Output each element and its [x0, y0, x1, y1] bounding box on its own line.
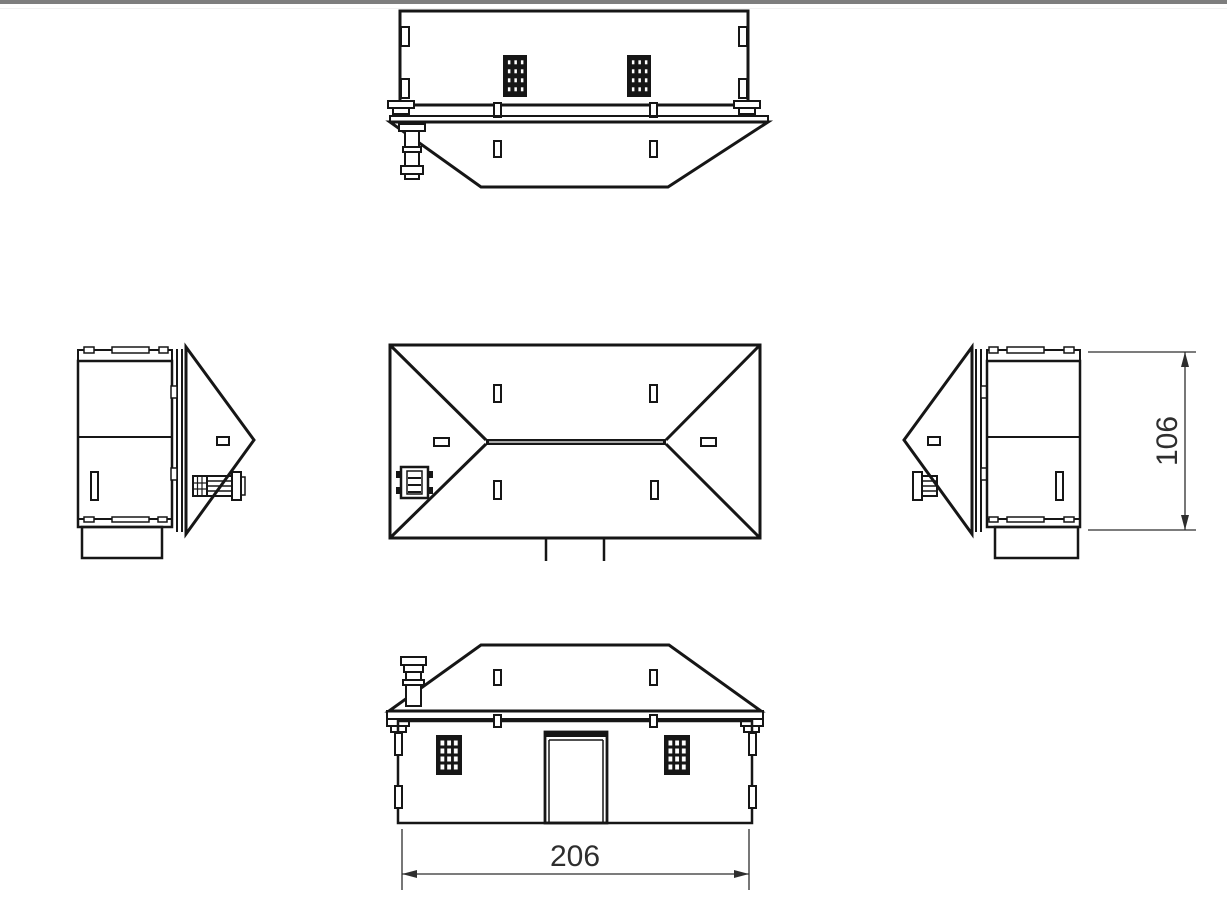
plan-hip-line [666, 346, 759, 440]
width-dimension-label: 206 [550, 840, 600, 873]
right-sill-notch [1007, 517, 1044, 522]
right-gable-slot [928, 437, 940, 445]
rear-eave-tab [494, 103, 501, 117]
left-wall [78, 361, 172, 527]
left-base [82, 527, 162, 558]
rear-corner-bracket [739, 108, 755, 114]
left-band-notch [112, 347, 149, 353]
plan-hip-line [666, 444, 759, 537]
left-side-view [78, 347, 254, 558]
right-sill-notch [1064, 517, 1074, 522]
left-fascia-tab [171, 468, 177, 480]
right-chimney [913, 472, 937, 500]
left-fascia-tab [171, 386, 177, 398]
rear-elevation-view [388, 11, 768, 187]
front-wall-tab [494, 715, 501, 727]
rear-corner-bracket [734, 101, 760, 108]
rear-wall [400, 11, 748, 105]
front-elevation-view: 206 [387, 645, 763, 890]
front-window-left [436, 735, 462, 775]
rear-tab [401, 79, 409, 98]
front-roof [389, 645, 761, 711]
plan-ridge [486, 439, 666, 445]
dimension-arrow-down [1181, 515, 1189, 530]
width-dimension: 206 [402, 829, 749, 890]
faint-guide-line [0, 8, 1227, 9]
left-chimney [193, 472, 245, 500]
right-side-view: 106 [904, 347, 1196, 558]
rear-tab [401, 27, 409, 46]
right-wall [987, 361, 1080, 527]
height-dimension: 106 [1088, 352, 1196, 530]
rear-tab [739, 27, 747, 46]
rear-roof-slot [494, 141, 501, 157]
orthographic-house-drawing: 106 [0, 0, 1227, 904]
rear-corner-bracket [388, 101, 414, 108]
right-band-notch [989, 347, 998, 353]
left-sill-notch [158, 517, 167, 522]
front-door [545, 732, 607, 823]
right-base [995, 527, 1078, 558]
left-band-notch [84, 347, 94, 353]
front-window-right [664, 735, 690, 775]
right-wall-slot [1056, 472, 1063, 500]
plan-roof-slot [494, 385, 501, 402]
plan-chimney [396, 467, 433, 498]
plan-roof-slot [651, 481, 658, 499]
plan-hip-line [391, 346, 486, 440]
plan-hip-line [391, 444, 486, 537]
plan-roof-slot [650, 385, 657, 402]
dimension-arrow-up [1181, 352, 1189, 367]
dimension-arrow-left [402, 870, 417, 878]
front-wall-tab [650, 715, 657, 727]
rear-roof-slot [650, 141, 657, 157]
front-edge-tab [395, 733, 402, 755]
dimension-arrow-right [734, 870, 749, 878]
rear-roof [390, 122, 768, 187]
window-top-border [0, 0, 1227, 4]
plan-hip-slot [434, 438, 449, 446]
rear-tab [739, 79, 747, 98]
left-band-notch [159, 347, 168, 353]
plan-hip-slot [701, 438, 716, 446]
right-band-notch [1064, 347, 1074, 353]
left-sill-notch [112, 517, 149, 522]
left-sill-notch [84, 517, 94, 522]
right-sill-notch [989, 517, 998, 522]
left-wall-slot [91, 472, 98, 500]
front-edge-tab [395, 786, 402, 808]
rear-corner-bracket [393, 108, 409, 114]
rear-eave-tab [650, 103, 657, 117]
front-edge-tab [749, 733, 756, 755]
left-gable-slot [217, 437, 229, 445]
rear-window-left [503, 55, 527, 97]
height-dimension-label: 106 [1151, 416, 1184, 466]
front-roof-slot [650, 670, 657, 685]
roof-plan-view [390, 345, 760, 561]
cad-drawing-canvas: 106 [0, 0, 1227, 904]
rear-window-right [627, 55, 651, 97]
plan-roof-slot [494, 481, 501, 499]
front-edge-tab [749, 786, 756, 808]
right-band-notch [1007, 347, 1044, 353]
front-roof-slot [494, 670, 501, 685]
